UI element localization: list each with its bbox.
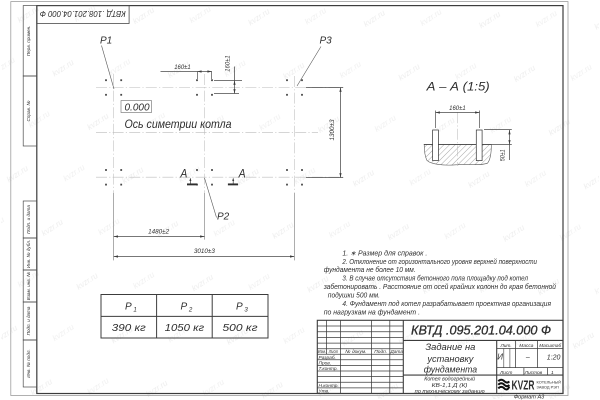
svg-text:Изм.: Изм. <box>318 349 327 355</box>
svg-text:Лит.: Лит. <box>499 343 511 349</box>
svg-text:P3: P3 <box>320 36 333 47</box>
svg-text:КВТД .108.201.04.000 Ф: КВТД .108.201.04.000 Ф <box>39 9 125 19</box>
svg-text:Взам. инв. №: Взам. инв. № <box>26 272 31 300</box>
svg-text:фундамента не более 10 мм.: фундамента не более 10 мм. <box>324 266 416 274</box>
svg-text:1. ∗ Размер для справок .: 1. ∗ Размер для справок . <box>342 249 427 257</box>
svg-text:Пров.: Пров. <box>319 360 332 366</box>
svg-text:Справ. №: Справ. № <box>26 101 31 122</box>
svg-text:Инв. № дубл.: Инв. № дубл. <box>26 240 31 268</box>
svg-text:–: – <box>525 354 530 361</box>
svg-text:фундамента: фундамента <box>424 365 477 376</box>
svg-text:Листов: Листов <box>524 370 543 376</box>
svg-text:4. Фундамент под котел раз: 4. Фундамент под котел разрабатывает про… <box>342 300 551 308</box>
svg-text:1:20: 1:20 <box>547 355 561 362</box>
svg-text:KVZR: KVZR <box>512 378 535 392</box>
svg-text:Подп.: Подп. <box>374 349 387 355</box>
svg-text:500 кг: 500 кг <box>223 323 258 334</box>
svg-text:Разраб.: Разраб. <box>319 355 336 361</box>
svg-text:0.000: 0.000 <box>125 102 150 113</box>
svg-text:Перв. примен.: Перв. примен. <box>26 26 31 57</box>
svg-text:2. Отклонение от горизонтал: 2. Отклонение от горизонтального уровня … <box>342 258 538 266</box>
svg-text:Т.контр.: Т.контр. <box>319 366 338 372</box>
svg-text:Формат А3: Формат А3 <box>514 394 545 400</box>
svg-text:160±1: 160±1 <box>449 105 466 112</box>
svg-text:A: A <box>238 166 246 180</box>
svg-text:1480±2: 1480±2 <box>148 229 169 236</box>
svg-text:P2: P2 <box>217 211 230 222</box>
svg-text:Котел водогрейный: Котел водогрейный <box>424 375 475 382</box>
svg-text:И: И <box>497 353 503 362</box>
svg-text:Масштаб: Масштаб <box>539 343 561 349</box>
svg-text:№ докум.: № докум. <box>345 349 366 355</box>
svg-text:1050 кг: 1050 кг <box>165 323 205 334</box>
svg-text:Инв. № подл.: Инв. № подл. <box>26 349 31 378</box>
svg-text:A: A <box>180 166 188 180</box>
svg-text:Лист: Лист <box>499 370 512 376</box>
svg-text:Н.контр.: Н.контр. <box>319 383 339 389</box>
svg-text:Масса: Масса <box>519 343 534 349</box>
svg-text:50±1: 50±1 <box>501 149 507 161</box>
svg-text:1300±3: 1300±3 <box>329 119 336 140</box>
svg-text:Ось симетрии котла: Ось симетрии котла <box>125 117 232 131</box>
svg-text:Подп. и дата: Подп. и дата <box>26 306 31 335</box>
svg-text:Подп. и дата: Подп. и дата <box>26 205 31 234</box>
svg-text:Утв.: Утв. <box>319 389 330 395</box>
svg-text:390 кг: 390 кг <box>112 323 146 334</box>
svg-text:забетонировать . Расстояние: забетонировать . Расстояние от осей край… <box>323 283 556 291</box>
svg-text:А – А (1:5): А – А (1:5) <box>426 81 490 93</box>
svg-text:по техническому заданию: по техническому заданию <box>415 389 485 395</box>
svg-text:установку: установку <box>426 354 474 365</box>
svg-text:160±1: 160±1 <box>174 64 191 71</box>
svg-text:Задание на: Задание на <box>425 342 475 353</box>
svg-text:1: 1 <box>551 370 554 376</box>
svg-text:по нагрузкам на фундамент .: по нагрузкам на фундамент . <box>324 309 420 317</box>
svg-text:ЗАВОД РЭП: ЗАВОД РЭП <box>537 384 559 389</box>
svg-text:160±1: 160±1 <box>225 55 232 72</box>
svg-text:3. В случае отсутствия бет: 3. В случае отсутствия бетонного пола пл… <box>342 275 528 283</box>
svg-text:Дата: Дата <box>389 349 403 355</box>
svg-text:Лист: Лист <box>328 349 338 355</box>
svg-text:подушки 500 мм.: подушки 500 мм. <box>328 292 380 300</box>
svg-text:P1: P1 <box>100 36 112 47</box>
svg-text:КВТД .095.201.04.000 Ф: КВТД .095.201.04.000 Ф <box>411 323 551 337</box>
svg-text:3010±3: 3010±3 <box>194 248 215 255</box>
